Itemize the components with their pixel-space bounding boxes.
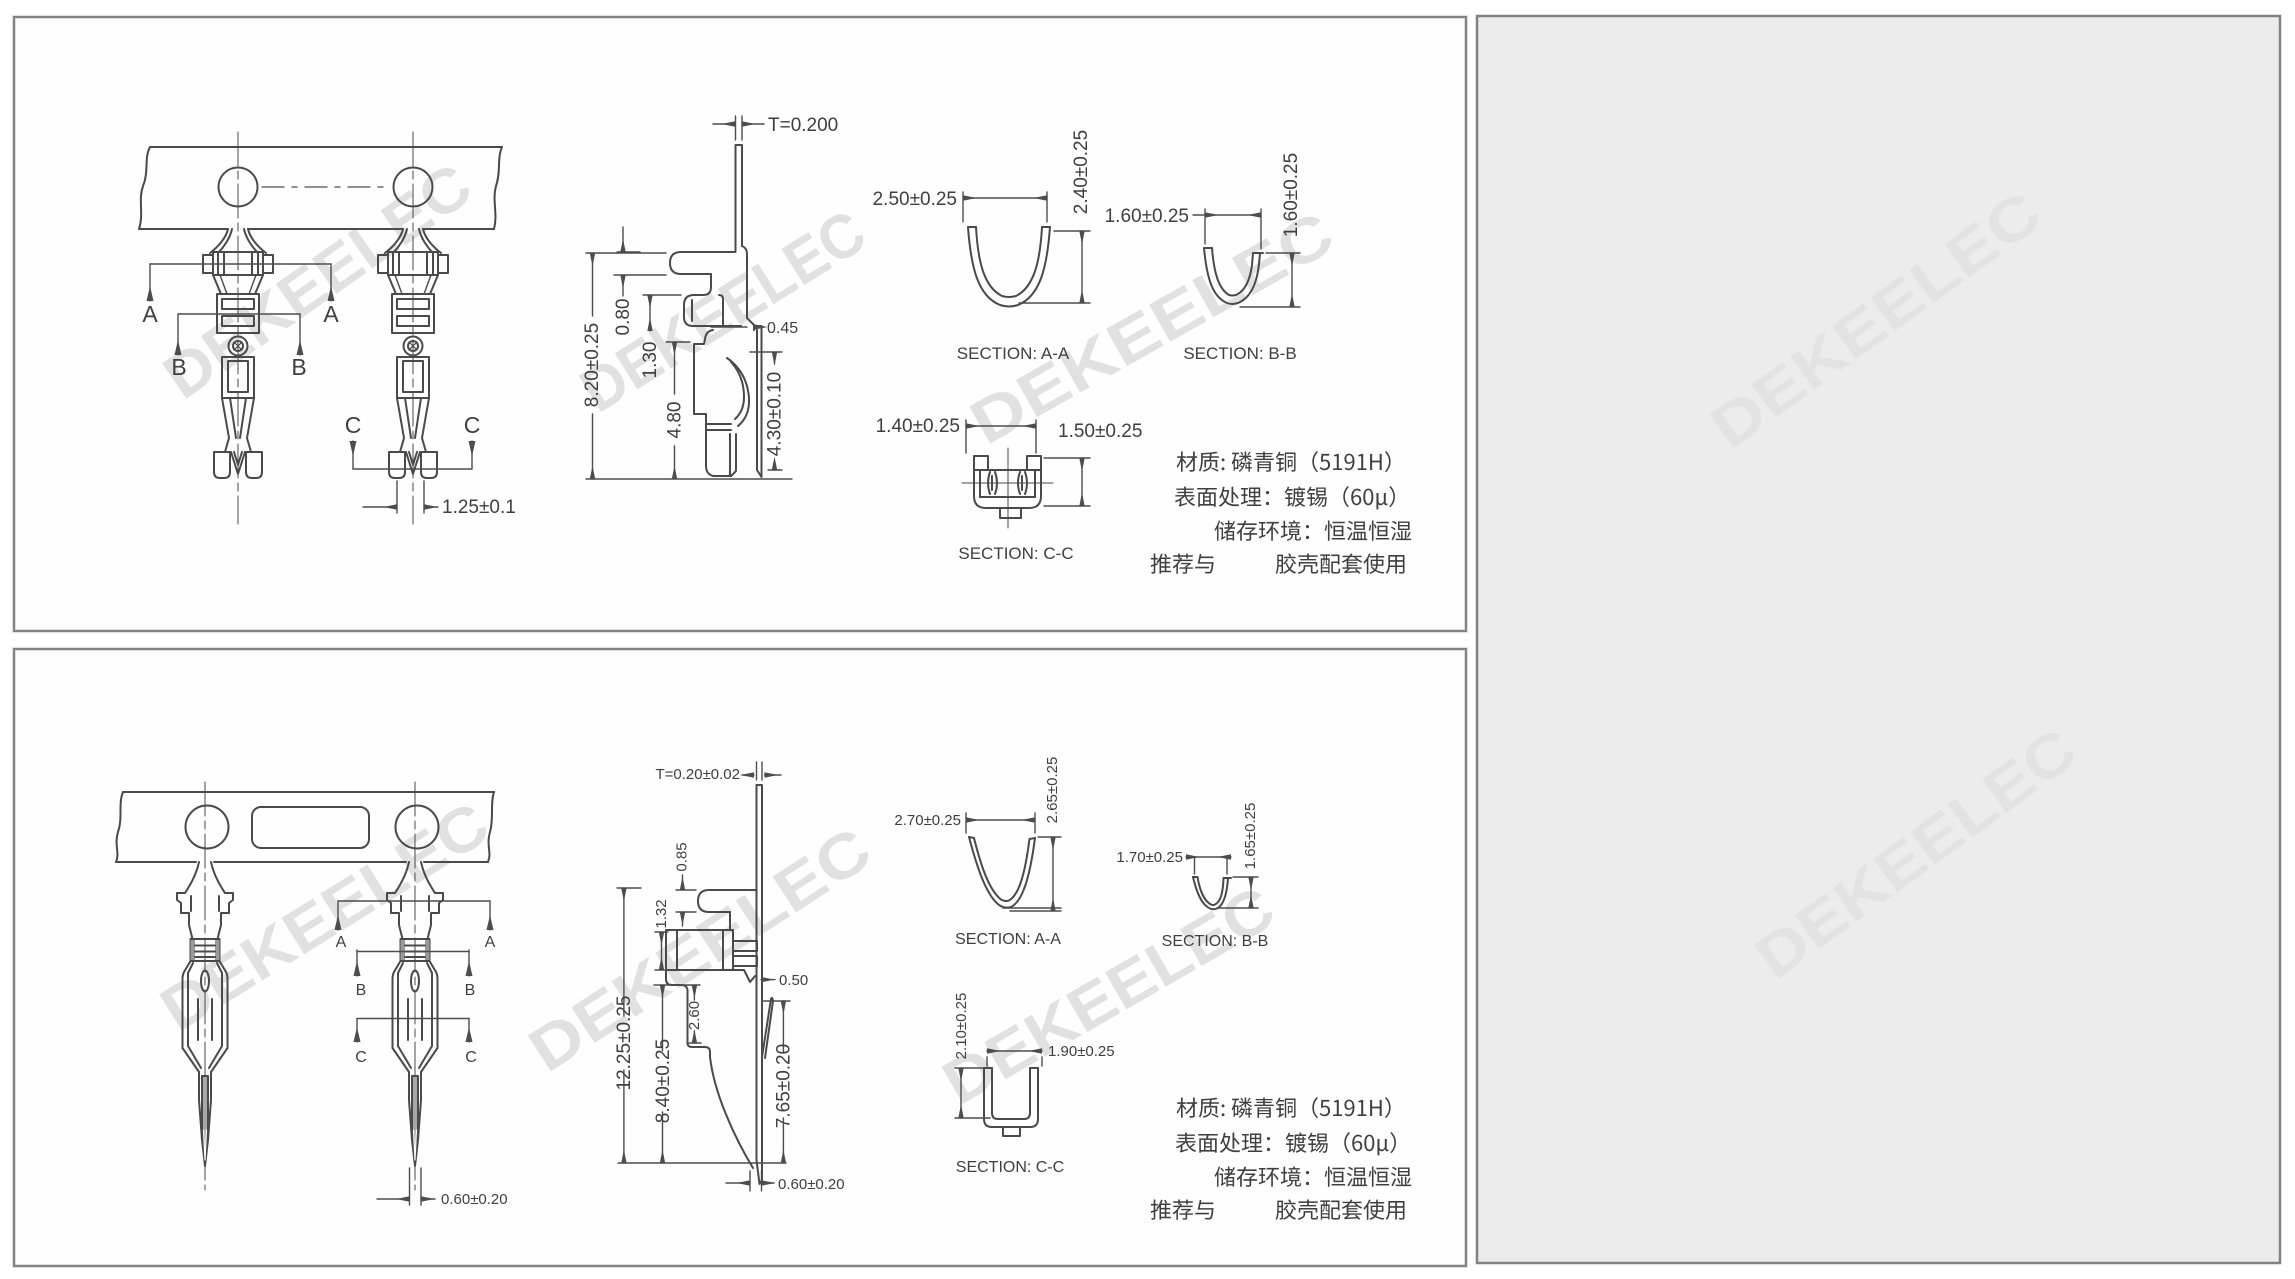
svg-text:C: C (345, 412, 362, 438)
svg-text:2.60: 2.60 (686, 1001, 703, 1030)
svg-text:T=0.20±0.02: T=0.20±0.02 (655, 766, 740, 783)
svg-text:7.65±0.20: 7.65±0.20 (773, 1044, 794, 1128)
svg-text:B: B (291, 354, 306, 380)
svg-text:1.30: 1.30 (640, 342, 661, 379)
svg-text:SECTION: C-C: SECTION: C-C (958, 544, 1073, 563)
svg-text:1.60±0.25: 1.60±0.25 (1281, 153, 1302, 237)
svg-text:1.60±0.25: 1.60±0.25 (1105, 206, 1189, 227)
svg-text:4.30±0.10: 4.30±0.10 (765, 372, 786, 456)
svg-text:A: A (323, 301, 339, 327)
svg-text:T=0.200: T=0.200 (768, 115, 838, 136)
svg-text:A: A (336, 934, 347, 951)
svg-text:SECTION: A-A: SECTION: A-A (957, 344, 1070, 363)
svg-text:SECTION: A-A: SECTION: A-A (955, 931, 1061, 948)
svg-text:B: B (171, 354, 186, 380)
svg-text:0.50: 0.50 (779, 972, 808, 989)
svg-text:1.70±0.25: 1.70±0.25 (1116, 849, 1183, 866)
svg-text:SECTION: B-B: SECTION: B-B (1162, 933, 1269, 950)
svg-text:1.25±0.1: 1.25±0.1 (442, 497, 516, 518)
svg-text:0.60±0.20: 0.60±0.20 (441, 1191, 508, 1208)
svg-text:2.65±0.25: 2.65±0.25 (1044, 757, 1061, 824)
svg-text:8.20±0.25: 8.20±0.25 (582, 323, 603, 407)
svg-text:0.85: 0.85 (674, 842, 691, 871)
svg-text:2.40±0.25: 2.40±0.25 (1071, 130, 1092, 214)
svg-text:C: C (355, 1049, 367, 1066)
svg-text:2.70±0.25: 2.70±0.25 (894, 812, 961, 829)
svg-text:4.80: 4.80 (665, 402, 686, 439)
svg-text:2.10±0.25: 2.10±0.25 (953, 993, 970, 1060)
svg-text:2.50±0.25: 2.50±0.25 (873, 189, 957, 210)
svg-text:1.40±0.25: 1.40±0.25 (876, 416, 960, 437)
svg-text:1.32: 1.32 (653, 899, 670, 928)
svg-text:8.40±0.25: 8.40±0.25 (653, 1039, 674, 1123)
svg-text:1.90±0.25: 1.90±0.25 (1048, 1043, 1115, 1060)
svg-text:1.50±0.25: 1.50±0.25 (1058, 421, 1142, 442)
svg-text:C: C (464, 412, 481, 438)
svg-text:SECTION: B-B: SECTION: B-B (1183, 344, 1296, 363)
svg-text:0.45: 0.45 (767, 320, 798, 337)
svg-text:SECTION: C-C: SECTION: C-C (956, 1159, 1064, 1176)
svg-text:0.60±0.20: 0.60±0.20 (778, 1176, 845, 1193)
svg-text:A: A (485, 934, 496, 951)
svg-text:C: C (465, 1049, 477, 1066)
svg-text:B: B (465, 982, 476, 999)
svg-text:12.25±0.25: 12.25±0.25 (614, 996, 635, 1091)
svg-text:B: B (356, 982, 367, 999)
svg-text:0.80: 0.80 (613, 299, 634, 336)
svg-text:A: A (142, 301, 158, 327)
svg-text:1.65±0.25: 1.65±0.25 (1242, 803, 1259, 870)
